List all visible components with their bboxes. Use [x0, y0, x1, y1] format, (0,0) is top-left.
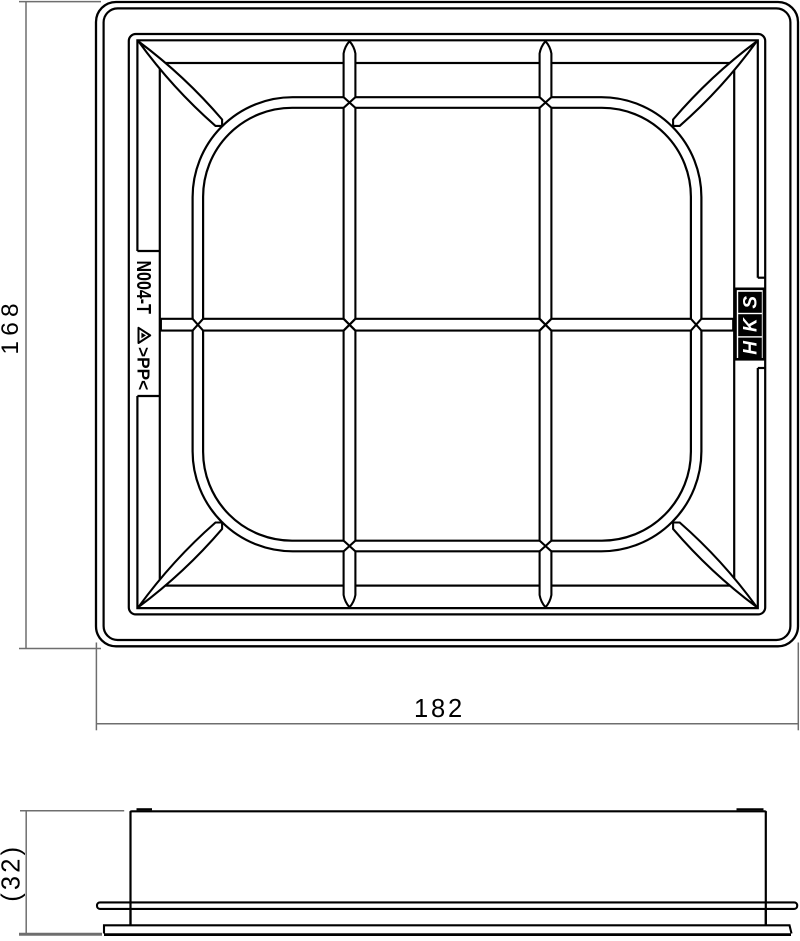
- svg-text:S: S: [740, 296, 761, 309]
- svg-text:168: 168: [0, 298, 24, 354]
- svg-text:>PP<: >PP<: [134, 347, 154, 390]
- svg-text:H: H: [740, 340, 761, 355]
- svg-text:182: 182: [414, 695, 465, 723]
- svg-text:K: K: [740, 317, 761, 332]
- svg-text:(32): (32): [0, 844, 26, 902]
- svg-text:N004-T: N004-T: [132, 261, 154, 314]
